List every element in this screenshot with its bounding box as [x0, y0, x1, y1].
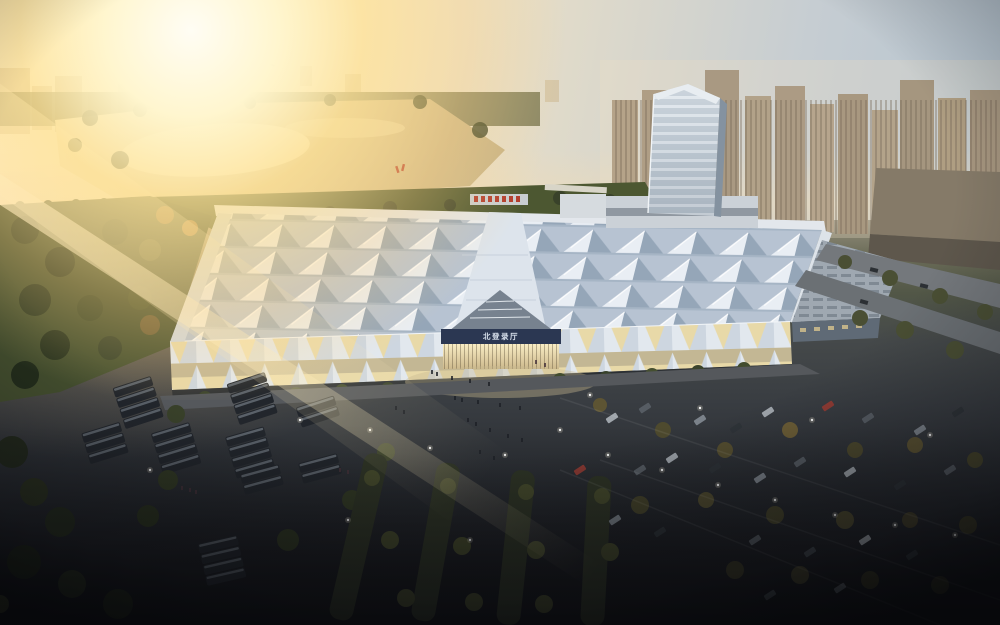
parked-cars — [573, 400, 964, 600]
sun-glow — [0, 0, 580, 400]
glass-tower — [648, 84, 727, 217]
rendering-canvas: 北登录厅 — [0, 0, 1000, 625]
warehouse-block — [870, 168, 1000, 242]
car-parking — [560, 398, 1000, 625]
